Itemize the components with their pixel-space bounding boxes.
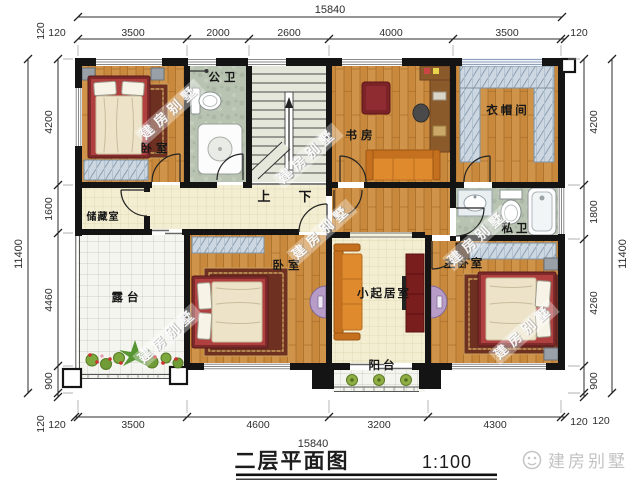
dim: 120 [570,27,588,39]
master-console-top [437,296,442,308]
dim: 4200 [588,110,600,134]
desk-chair [413,104,429,122]
corridor-floor [82,185,326,232]
floor-plan-drawing: 卧室 公卫 书房 衣帽间 储藏室 私卫 卧室 主卧室 小起居室 露台 阳台 上 … [0,0,640,485]
window-top-study [342,58,402,66]
window-top-cloakroom [462,58,542,66]
dim: 3500 [121,419,145,431]
floor-plan-page: 卧室 公卫 书房 衣帽间 储藏室 私卫 卧室 主卧室 小起居室 露台 阳台 上 … [0,0,640,485]
window-bottom-bedroom2 [204,363,290,370]
logo-eye [534,457,537,460]
caption-underline-thin [236,479,497,480]
terrace-sliding-door [152,229,182,235]
dim: 4300 [483,419,507,431]
dim: 120 [35,22,47,40]
dim: 120 [592,415,610,427]
dim: 900 [43,372,55,390]
dim: 900 [588,372,600,390]
terrace-post [63,369,81,387]
caption-block: 二层平面图 1:100 [235,450,498,480]
dim: 2600 [277,27,301,39]
window-bottom-master [452,363,546,370]
logo-smile [528,463,536,465]
bedroom2-console-top [318,296,323,308]
dim-left-overall: 11400 [13,239,25,269]
window-top-bedroom1 [96,58,162,66]
stair-up-label: 上 [257,189,270,204]
cloakroom-label: 衣帽间 [486,103,530,117]
dim: 4000 [379,27,403,39]
public-bath-label: 公卫 [209,71,240,84]
bedroom2-wardrobe [192,237,264,253]
living-label: 小起居室 [356,286,411,300]
dim: 4460 [43,288,55,312]
toilet-tank [500,190,522,199]
dim-right-overall: 11400 [617,239,629,269]
dim: 120 [35,415,47,433]
dim: 3500 [121,27,145,39]
study-desk [430,80,450,152]
brand-logo-icon [524,452,541,469]
cased-opening-living [350,232,412,238]
window-top-public-bath [188,58,216,66]
master-nightstand [544,258,558,270]
dim: 4600 [246,419,270,431]
bedroom2-bed [192,276,268,348]
storage-label: 储藏室 [86,210,120,223]
dim: 120 [48,419,66,431]
study-label: 书房 [346,128,377,142]
stair-down-label: 下 [298,189,311,204]
dim: 1600 [43,197,55,221]
window-left-bedroom1 [75,88,82,146]
dim-bottom-overall: 15840 [298,438,329,450]
dim-top-overall: 15840 [315,4,346,16]
corner-post [562,59,575,72]
dim: 3200 [367,419,391,431]
brand-logo: 建房别墅 [524,452,629,472]
plan-scale: 1:100 [422,452,472,472]
master-nightstand [544,348,558,360]
bedroom1-wardrobe [84,160,148,180]
dim: 4200 [43,110,55,134]
window-top-stairs [248,58,286,66]
balcony-label: 阳台 [369,358,398,372]
caption-underline [236,474,497,477]
study-sofa [366,150,440,180]
brand-name: 建房别墅 [548,452,628,471]
dim: 1800 [588,200,600,224]
dim: 4260 [588,291,600,315]
window-right-private-bath [558,188,565,234]
terrace-label: 露台 [112,290,143,304]
terrace-post [170,367,187,384]
dim: 2000 [206,27,230,39]
bedroom1-nightstand [151,68,164,80]
dim: 120 [570,416,588,428]
dim: 120 [48,27,66,39]
plan-title: 二层平面图 [235,450,350,473]
logo-eye [528,457,531,460]
dim: 3500 [495,27,519,39]
